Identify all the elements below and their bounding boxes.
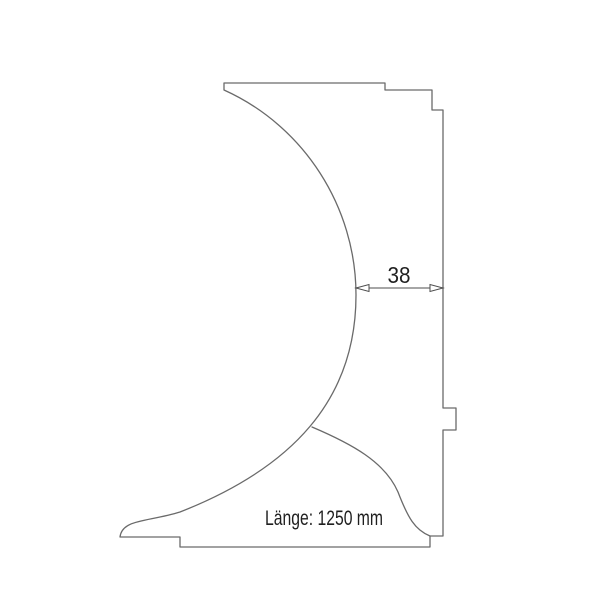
dimension-arrowhead-right-icon — [430, 285, 443, 292]
drawing-canvas: 38 Länge: 1250 mm — [0, 0, 600, 600]
profile-drawing: 38 Länge: 1250 mm — [0, 0, 600, 600]
width-dimension: 38 — [356, 262, 443, 292]
length-label: Länge: 1250 mm — [265, 506, 383, 530]
dimension-arrowhead-left-icon — [356, 285, 369, 292]
profile-outline — [120, 83, 456, 547]
dimension-value-label: 38 — [388, 262, 411, 288]
